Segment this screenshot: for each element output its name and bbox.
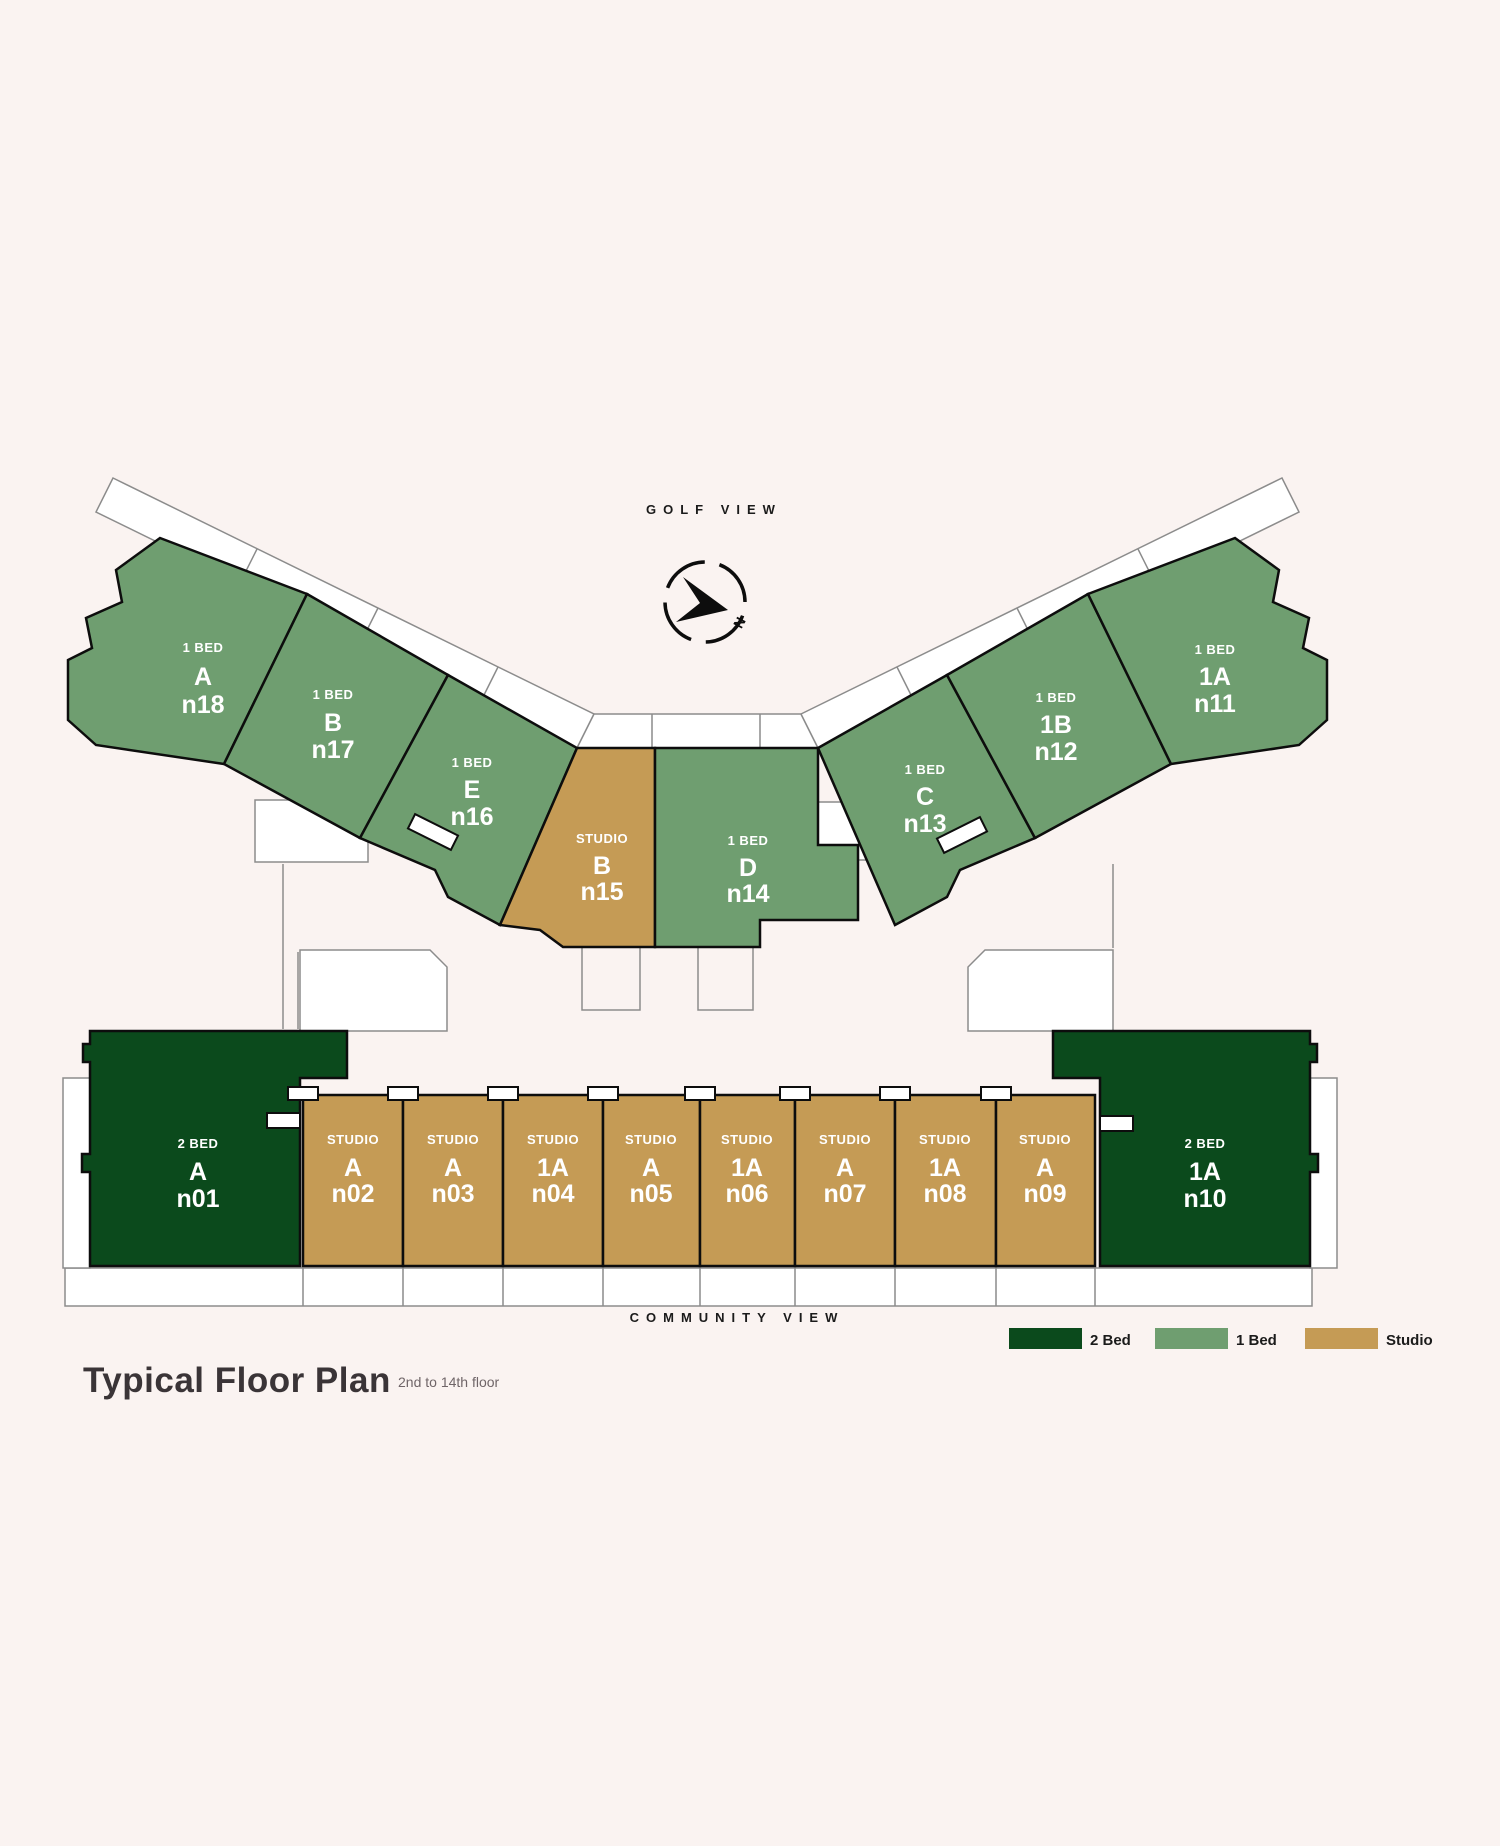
svg-text:n05: n05: [629, 1180, 672, 1208]
legend-swatch-studio: [1305, 1328, 1378, 1349]
floor-plan-canvas: GOLF VIEW N: [0, 0, 1500, 1846]
page-title: Typical Floor Plan: [83, 1361, 391, 1400]
svg-text:A: A: [344, 1154, 362, 1182]
svg-text:A: A: [836, 1154, 854, 1182]
svg-text:STUDIO: STUDIO: [1019, 1132, 1071, 1147]
svg-text:n17: n17: [311, 736, 354, 764]
svg-text:1 BED: 1 BED: [905, 762, 946, 777]
stair-core-center-right: [698, 948, 753, 1010]
amenity-room-right: [968, 950, 1113, 1031]
svg-text:2 BED: 2 BED: [1185, 1136, 1226, 1151]
legend-swatch-1bed: [1155, 1328, 1228, 1349]
svg-text:n09: n09: [1023, 1180, 1066, 1208]
svg-text:STUDIO: STUDIO: [427, 1132, 479, 1147]
svg-text:n11: n11: [1194, 690, 1236, 718]
svg-text:n15: n15: [580, 878, 623, 906]
svg-text:1A: 1A: [929, 1154, 961, 1182]
svg-text:n01: n01: [176, 1185, 219, 1213]
svg-text:1 BED: 1 BED: [452, 755, 493, 770]
svg-text:n03: n03: [431, 1180, 474, 1208]
svg-text:A: A: [194, 663, 212, 691]
svg-text:1A: 1A: [1189, 1158, 1221, 1186]
svg-text:C: C: [916, 783, 934, 811]
svg-text:A: A: [1036, 1154, 1054, 1182]
svg-text:STUDIO: STUDIO: [625, 1132, 677, 1147]
svg-text:n02: n02: [331, 1180, 374, 1208]
svg-text:1B: 1B: [1040, 711, 1072, 739]
legend: 2 Bed 1 Bed Studio: [1009, 1328, 1433, 1349]
svg-text:1 BED: 1 BED: [728, 833, 769, 848]
svg-text:STUDIO: STUDIO: [576, 831, 628, 846]
svg-text:n13: n13: [903, 810, 946, 838]
svg-text:STUDIO: STUDIO: [527, 1132, 579, 1147]
svg-text:n14: n14: [726, 880, 769, 908]
svg-text:1 BED: 1 BED: [313, 687, 354, 702]
entry-notch-n01: [267, 1113, 300, 1128]
legend-swatch-2bed: [1009, 1328, 1082, 1349]
page-subtitle: 2nd to 14th floor: [398, 1374, 500, 1390]
balcony-strip-apex: [577, 714, 818, 748]
svg-text:1 BED: 1 BED: [1195, 642, 1236, 657]
svg-text:n16: n16: [450, 803, 493, 831]
svg-text:n06: n06: [725, 1180, 768, 1208]
floor-plan-page: GOLF VIEW N: [0, 0, 1500, 1846]
svg-text:n07: n07: [823, 1180, 866, 1208]
balcony-strip-bottom: [65, 1268, 1312, 1306]
svg-text:STUDIO: STUDIO: [819, 1132, 871, 1147]
stair-core-center-left: [582, 948, 640, 1010]
svg-text:A: A: [642, 1154, 660, 1182]
golf-view-label: GOLF VIEW: [646, 502, 782, 517]
unit-label-n12: 1 BED 1B n12: [1034, 690, 1077, 766]
unit-label-n10: 2 BED 1A n10: [1183, 1136, 1226, 1213]
svg-text:n08: n08: [923, 1180, 966, 1208]
svg-text:n12: n12: [1034, 738, 1077, 766]
svg-text:1A: 1A: [1199, 663, 1231, 691]
svg-text:A: A: [189, 1158, 207, 1186]
svg-text:n18: n18: [181, 691, 224, 719]
svg-text:STUDIO: STUDIO: [721, 1132, 773, 1147]
svg-text:n10: n10: [1183, 1185, 1226, 1213]
svg-text:2 BED: 2 BED: [178, 1136, 219, 1151]
svg-text:1A: 1A: [537, 1154, 569, 1182]
svg-text:1 BED: 1 BED: [1036, 690, 1077, 705]
compass-north-label: N: [730, 614, 749, 630]
svg-text:B: B: [324, 709, 342, 737]
svg-text:1 BED: 1 BED: [183, 640, 224, 655]
amenity-room-left: [300, 950, 447, 1031]
svg-text:1A: 1A: [731, 1154, 763, 1182]
legend-label-2bed: 2 Bed: [1090, 1332, 1131, 1349]
legend-label-studio: Studio: [1386, 1332, 1433, 1349]
entry-notch-n10: [1100, 1116, 1133, 1131]
compass-arrow-icon: [676, 577, 728, 622]
compass: N: [654, 551, 757, 654]
unit-label-n11: 1 BED 1A n11: [1194, 642, 1236, 718]
legend-label-1bed: 1 Bed: [1236, 1332, 1277, 1349]
svg-text:STUDIO: STUDIO: [919, 1132, 971, 1147]
svg-text:STUDIO: STUDIO: [327, 1132, 379, 1147]
community-view-label: COMMUNITY VIEW: [630, 1310, 845, 1325]
svg-text:D: D: [739, 854, 757, 882]
svg-text:E: E: [464, 776, 481, 804]
svg-text:n04: n04: [531, 1180, 574, 1208]
svg-text:B: B: [593, 852, 611, 880]
svg-text:A: A: [444, 1154, 462, 1182]
